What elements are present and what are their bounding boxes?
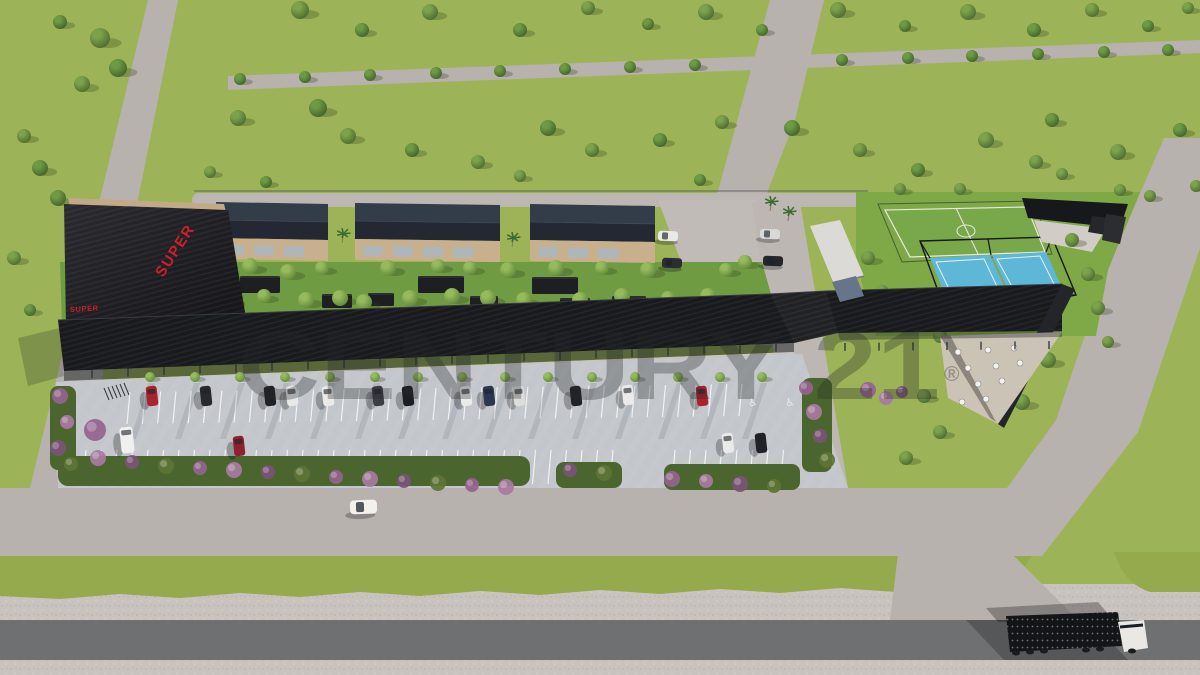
bush-highlight: [821, 454, 828, 461]
bush-highlight: [467, 480, 473, 486]
terrace-table: [985, 347, 991, 353]
tree-crown: [380, 260, 396, 276]
tree-crown: [50, 190, 66, 206]
tree-crown: [698, 4, 714, 20]
tree-crown: [830, 2, 846, 18]
tree-crown: [1081, 267, 1095, 281]
watermark-text: CENTURY 21: [238, 311, 940, 420]
tree-crown: [960, 4, 976, 20]
tree-crown: [1085, 3, 1099, 17]
tree-crown: [1056, 168, 1068, 180]
car-body: [721, 432, 734, 453]
tree-crown: [540, 120, 556, 136]
watermark-group: CENTURY 21 ®: [238, 311, 960, 420]
residential-building: [355, 203, 500, 262]
window: [423, 247, 443, 257]
tree-crown: [356, 294, 372, 310]
tree-crown: [1110, 144, 1126, 160]
window: [453, 248, 473, 258]
residential-buildings: [216, 202, 655, 263]
terrace-table: [1017, 360, 1023, 366]
bush-highlight: [432, 477, 439, 484]
tree-crown: [966, 50, 978, 62]
tree-crown: [422, 4, 438, 20]
terrace-table: [955, 349, 961, 355]
window: [598, 248, 618, 258]
tree-crown: [738, 255, 752, 269]
car-glass: [356, 502, 364, 512]
tree-crown: [933, 425, 947, 439]
car-body: [145, 385, 158, 406]
tree-crown: [1032, 48, 1044, 60]
tree-crown: [836, 54, 848, 66]
residential-building: [530, 204, 655, 263]
bush-highlight: [500, 481, 507, 488]
tree-crown: [899, 451, 913, 465]
tree-crown: [585, 143, 599, 157]
terrace-table: [993, 363, 999, 369]
tree-crown: [431, 259, 445, 273]
tree-crown: [242, 258, 258, 274]
tree-crown: [1065, 233, 1079, 247]
tree-crown: [1114, 184, 1126, 196]
terrace-table: [983, 396, 989, 402]
car-glass: [121, 430, 131, 436]
tree-crown: [1162, 44, 1174, 56]
tree-crown: [405, 143, 419, 157]
tree-crown: [581, 1, 595, 15]
tree-crown: [1173, 123, 1187, 137]
tree-crown: [24, 304, 36, 316]
tree-crown: [954, 183, 966, 195]
tree-crown: [230, 110, 246, 126]
tree-crown: [559, 63, 571, 75]
bush-highlight: [127, 457, 133, 463]
bush-highlight: [598, 467, 605, 474]
car-body: [199, 385, 212, 406]
bush-highlight: [195, 463, 201, 469]
car-body: [232, 435, 245, 456]
tree-crown: [513, 23, 527, 37]
car-body: [754, 432, 767, 453]
cab-windshield: [1120, 625, 1143, 627]
tree-crown: [756, 24, 768, 36]
tree-crown: [444, 288, 460, 304]
bush-highlight: [769, 481, 775, 487]
terrace-table: [1011, 345, 1017, 351]
tree-crown: [715, 115, 729, 129]
tree-crown: [463, 261, 477, 275]
tree-crown: [624, 61, 636, 73]
access-road: [0, 488, 1058, 558]
bush-highlight: [296, 468, 303, 475]
tree-crown: [1144, 190, 1156, 202]
car-glass: [147, 389, 155, 395]
terrace-table: [959, 399, 965, 405]
bush-highlight: [87, 422, 97, 432]
window: [363, 246, 383, 256]
tree-crown: [234, 73, 246, 85]
bush-highlight: [399, 476, 405, 482]
bush-highlight: [701, 476, 707, 482]
tree-crown: [309, 99, 327, 117]
tree-crown: [894, 183, 906, 195]
tree-crown: [853, 143, 867, 157]
tree-crown: [190, 372, 200, 382]
tree-crown: [719, 263, 733, 277]
shed-roof: [532, 277, 578, 294]
bush-highlight: [263, 467, 269, 473]
car-glass: [767, 257, 773, 264]
bush-highlight: [666, 473, 673, 480]
roof-upper-slope: [216, 202, 328, 222]
bush-highlight: [52, 442, 59, 449]
bush-highlight: [66, 459, 72, 465]
window: [393, 247, 413, 257]
bush-highlight: [62, 417, 68, 423]
garden-shed: [532, 277, 578, 294]
soccer-field: [885, 207, 1045, 257]
tree-crown: [74, 76, 90, 92]
tree-crown: [1091, 301, 1105, 315]
tree-crown: [32, 160, 48, 176]
tree-crown: [471, 155, 485, 169]
tree-crown: [364, 69, 376, 81]
bush-highlight: [815, 431, 821, 437]
car-glass: [666, 259, 672, 266]
tree-crown: [1045, 113, 1059, 127]
tree-crown: [53, 15, 67, 29]
car-glass: [723, 436, 731, 442]
trailer-texture: [1006, 612, 1122, 652]
watermark-registered-icon: ®: [944, 363, 960, 386]
tree-crown: [280, 264, 296, 280]
tree-crown: [340, 128, 356, 144]
car-glass: [662, 232, 668, 239]
tree-crown: [861, 251, 875, 265]
bush-highlight: [364, 473, 371, 480]
window: [538, 247, 558, 257]
tree-crown: [500, 262, 516, 278]
tree-crown: [694, 174, 706, 186]
bush-highlight: [92, 452, 99, 459]
bush-highlight: [565, 465, 571, 471]
supermarket-wall-sign: SUPER: [70, 304, 99, 314]
roof-upper-slope: [530, 204, 655, 224]
tree-crown: [1027, 23, 1041, 37]
terrace-table: [965, 365, 971, 371]
tree-crown: [640, 262, 656, 278]
tree-crown: [1098, 46, 1110, 58]
car-glass: [234, 439, 242, 445]
tree-crown: [332, 290, 348, 306]
tree-crown: [145, 372, 155, 382]
site-plan-render: SUPER SUPER ♿ ♿: [0, 0, 1200, 675]
tree-crown: [204, 166, 216, 178]
terrace-table: [999, 378, 1005, 384]
window: [568, 248, 588, 258]
tree-crown: [784, 120, 800, 136]
tree-crown: [315, 261, 329, 275]
tree-crown: [653, 133, 667, 147]
window: [284, 246, 304, 256]
aerial-render-viewport: SUPER SUPER ♿ ♿: [0, 0, 1200, 675]
bush-highlight: [54, 390, 61, 397]
tree-crown: [355, 23, 369, 37]
roof-lower-slope: [530, 222, 655, 242]
tree-crown: [1142, 20, 1154, 32]
tree-crown: [90, 28, 110, 48]
tree-crown: [902, 52, 914, 64]
tree-crown: [291, 1, 309, 19]
tree-crown: [642, 18, 654, 30]
window: [254, 246, 274, 256]
tree-crown: [548, 260, 564, 276]
tree-crown: [430, 67, 442, 79]
car-glass: [201, 389, 209, 395]
tree-crown: [299, 71, 311, 83]
tree-crown: [1029, 155, 1043, 169]
roof-lower-slope: [355, 221, 500, 241]
tree-crown: [595, 261, 609, 275]
tree-crown: [402, 290, 418, 306]
tree-crown: [7, 251, 21, 265]
tree-crown: [494, 65, 506, 77]
car-glass: [756, 436, 764, 442]
terrace-table: [975, 381, 981, 387]
bush-highlight: [228, 464, 235, 471]
tree-crown: [899, 20, 911, 32]
tree-crown: [1102, 336, 1114, 348]
tree-crown: [1182, 2, 1194, 14]
tree-crown: [689, 59, 701, 71]
tree-crown: [514, 170, 526, 182]
tree-crown: [109, 59, 127, 77]
roof-lower-slope: [216, 220, 328, 240]
car-glass: [764, 230, 770, 237]
bush-highlight: [331, 472, 337, 478]
tree-crown: [978, 132, 994, 148]
tree-crown: [257, 289, 271, 303]
tree-crown: [911, 163, 925, 177]
bush-highlight: [734, 478, 741, 485]
tree-crown: [298, 292, 314, 308]
tree-crown: [17, 129, 31, 143]
roof-upper-slope: [355, 203, 500, 223]
tree-crown: [260, 176, 272, 188]
bush-highlight: [160, 460, 167, 467]
